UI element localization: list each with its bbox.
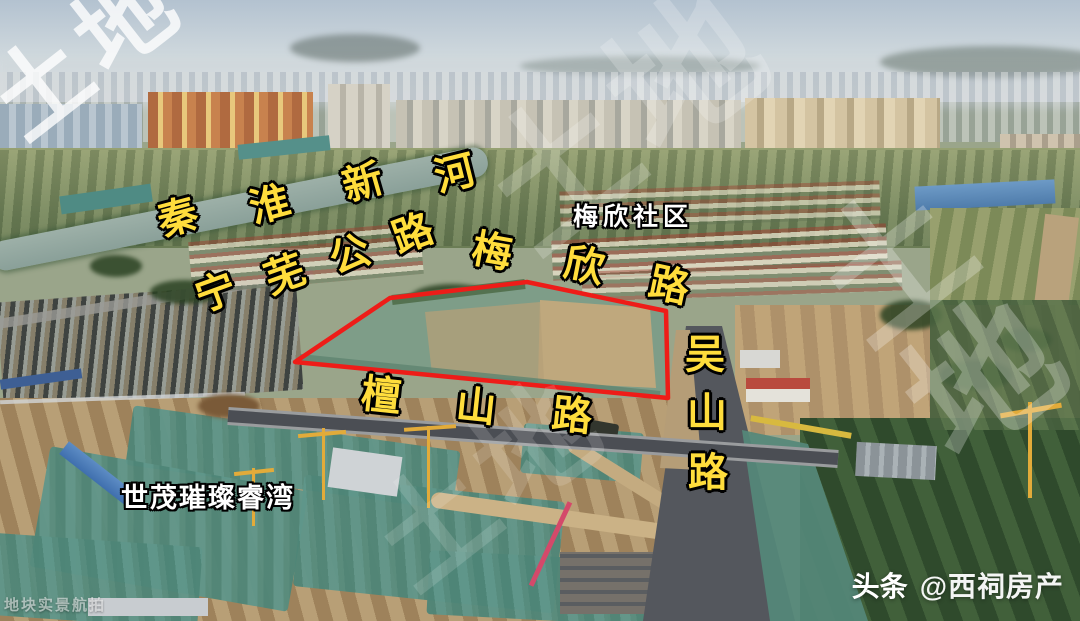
tower-crane	[427, 426, 430, 508]
plot-dirt-patch	[538, 300, 656, 388]
road-label-char: 欣	[561, 243, 608, 290]
tower-crane	[1028, 402, 1032, 498]
road-label-char: 路	[688, 453, 728, 493]
aerial-photo: 土地 土地 土地 土地 秦 淮 新 河 宁 芜 公 路 梅 欣 路 檀 山 路 …	[0, 0, 1080, 621]
credit-brand: 头条	[852, 565, 908, 605]
place-label-meixin-community: 梅欣社区	[573, 205, 693, 230]
road-label-char: 路	[550, 394, 594, 438]
road-label-char: 檀	[359, 374, 403, 418]
plot-dirt-patch	[425, 302, 544, 380]
road-label-char: 梅	[469, 229, 515, 275]
map-overlay	[0, 0, 1080, 621]
credit-account: @西祠房产	[920, 565, 1064, 605]
tower-crane	[322, 428, 325, 500]
road-label-char: 山	[687, 393, 727, 433]
road-label-char: 吴	[685, 335, 725, 375]
road-label-char: 路	[645, 262, 692, 309]
corner-caption: 地块实景航拍	[4, 594, 106, 615]
place-label-shimao-project: 世茂璀璨睿湾	[121, 485, 295, 512]
credit-watermark: 头条 @西祠房产	[852, 565, 1064, 605]
road-label-char: 山	[454, 385, 498, 429]
